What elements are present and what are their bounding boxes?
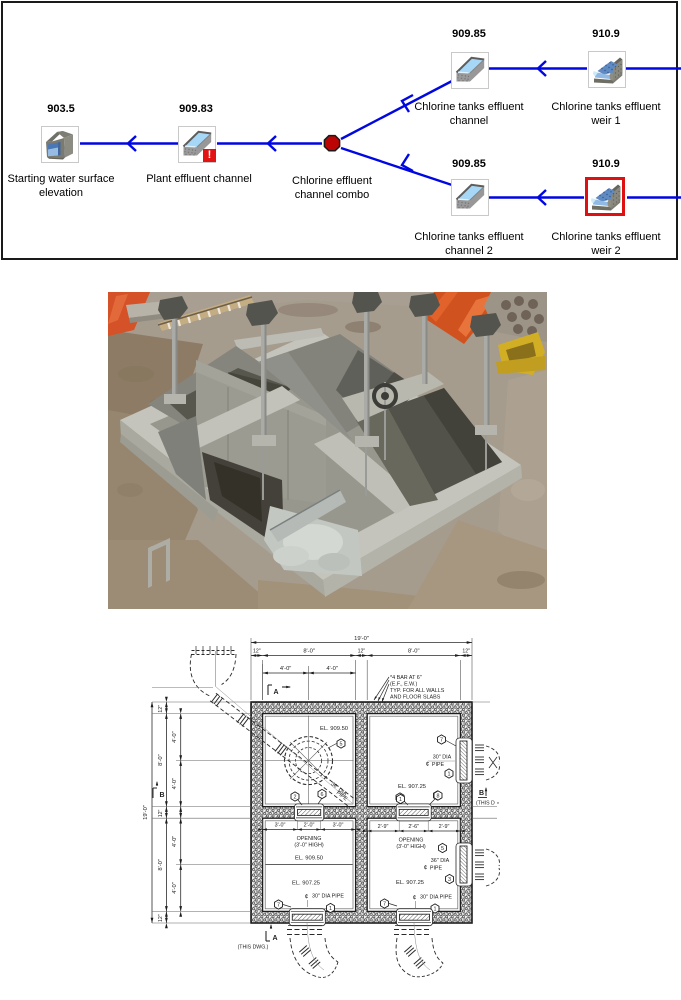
svg-text:2'-6": 2'-6"	[408, 824, 419, 830]
svg-text:12": 12"	[158, 809, 164, 817]
svg-text:4'-0": 4'-0"	[280, 666, 292, 672]
svg-text:6: 6	[321, 792, 324, 798]
svg-text:8'-0": 8'-0"	[408, 649, 420, 655]
svg-text:4'-0": 4'-0"	[172, 778, 178, 790]
svg-text:¢: ¢	[305, 894, 309, 901]
svg-text:*: *	[497, 802, 499, 808]
svg-text:4'-0": 4'-0"	[172, 836, 178, 848]
svg-text:¢: ¢	[426, 761, 430, 768]
svg-text:7: 7	[440, 738, 443, 744]
svg-text:¢: ¢	[424, 865, 428, 872]
svg-text:7: 7	[277, 903, 280, 909]
svg-text:PIPE: PIPE	[432, 762, 445, 768]
svg-text:4'-0": 4'-0"	[172, 731, 178, 743]
svg-text:AND FLOOR SLABS: AND FLOOR SLABS	[390, 695, 441, 701]
svg-text:8'-0": 8'-0"	[303, 649, 315, 655]
svg-text:12": 12"	[158, 914, 164, 922]
svg-text:(E.F., E.W.): (E.F., E.W.)	[390, 682, 417, 688]
svg-text:A: A	[272, 935, 277, 942]
svg-text:B: B	[159, 792, 164, 799]
svg-text:EL. 907.25: EL. 907.25	[398, 784, 426, 790]
svg-text:3'-0": 3'-0"	[275, 823, 286, 829]
svg-text:TYP. FOR ALL WALLS: TYP. FOR ALL WALLS	[390, 688, 445, 694]
svg-text:4'-0": 4'-0"	[326, 666, 338, 672]
svg-text:3: 3	[448, 877, 451, 883]
svg-text:5: 5	[441, 846, 444, 852]
svg-text:EL. 907.25: EL. 907.25	[396, 880, 424, 886]
svg-text:4'-0": 4'-0"	[172, 882, 178, 894]
svg-text:7: 7	[383, 902, 386, 908]
svg-text:8'-0": 8'-0"	[158, 859, 164, 871]
svg-text:2: 2	[294, 795, 297, 801]
svg-text:5: 5	[340, 742, 343, 748]
svg-text:EL. 909.50: EL. 909.50	[320, 726, 348, 732]
svg-text:(3'-0" HIGH): (3'-0" HIGH)	[396, 844, 426, 850]
svg-text:2'-0": 2'-0"	[304, 823, 315, 829]
svg-text:12": 12"	[462, 649, 470, 655]
svg-text:¢: ¢	[413, 895, 417, 902]
svg-text:1: 1	[399, 797, 402, 803]
svg-text:30" DIA: 30" DIA	[433, 755, 452, 761]
svg-text:12": 12"	[358, 649, 366, 655]
svg-text:*4 BAR AT 6": *4 BAR AT 6"	[390, 675, 422, 681]
svg-text:(3'-0" HIGH): (3'-0" HIGH)	[294, 843, 324, 849]
svg-text:PIPE: PIPE	[430, 866, 443, 872]
svg-text:EL. 909.50: EL. 909.50	[295, 856, 323, 862]
svg-text:(THIS DWG.): (THIS DWG.)	[238, 945, 269, 951]
svg-text:12": 12"	[158, 705, 164, 713]
svg-text:8'-0": 8'-0"	[158, 754, 164, 766]
svg-text:2'-9": 2'-9"	[378, 824, 389, 830]
svg-text:19'-0": 19'-0"	[143, 805, 149, 820]
svg-text:1: 1	[448, 772, 451, 778]
svg-text:1: 1	[434, 907, 437, 913]
svg-text:30" DIA PIPE: 30" DIA PIPE	[420, 895, 452, 901]
svg-text:30" DIA PIPE: 30" DIA PIPE	[312, 894, 344, 900]
svg-text:1: 1	[329, 906, 332, 912]
svg-text:EL. 907.25: EL. 907.25	[292, 881, 320, 887]
svg-text:3'-0": 3'-0"	[333, 823, 344, 829]
svg-text:(THIS D: (THIS D	[476, 801, 495, 807]
svg-text:OPENING: OPENING	[297, 836, 322, 842]
svg-text:8: 8	[437, 794, 440, 800]
svg-text:12": 12"	[253, 649, 261, 655]
svg-text:2'-9": 2'-9"	[439, 824, 450, 830]
svg-text:A: A	[273, 689, 278, 696]
svg-text:36" DIA: 36" DIA	[431, 858, 450, 864]
svg-text:B: B	[479, 790, 484, 797]
svg-text:19'-0": 19'-0"	[354, 636, 369, 642]
svg-text:OPENING: OPENING	[399, 838, 424, 844]
